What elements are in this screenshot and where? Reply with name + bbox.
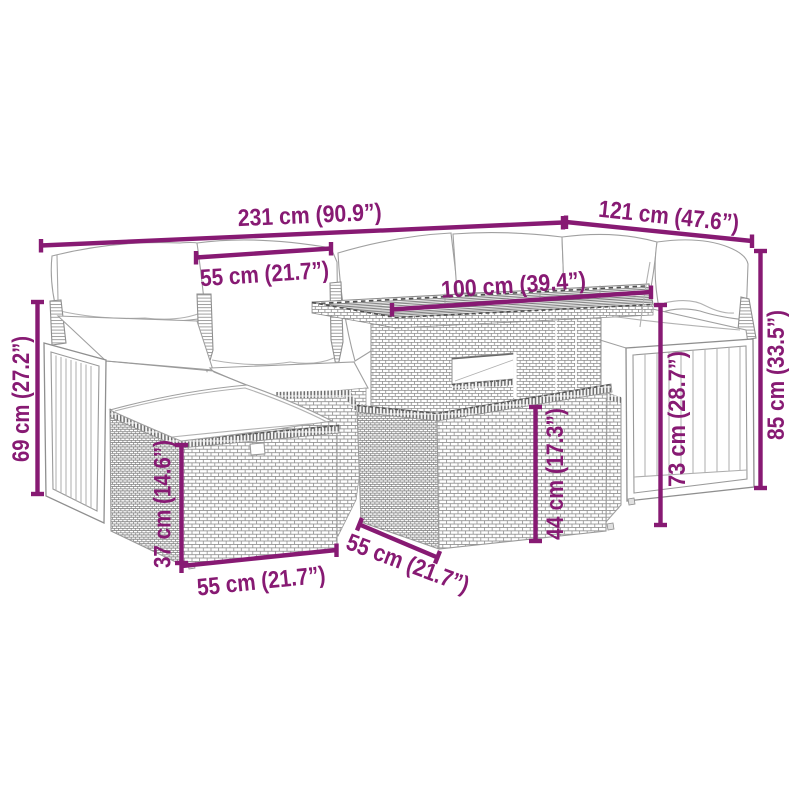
svg-text:73 cm (28.7”): 73 cm (28.7”) [664,351,691,487]
svg-text:69 cm (27.2”): 69 cm (27.2”) [8,336,35,462]
svg-text:37 cm (14.6”): 37 cm (14.6”) [150,440,177,568]
svg-text:85 cm (33.5”): 85 cm (33.5”) [763,310,790,440]
svg-text:44 cm (17.3”): 44 cm (17.3”) [542,408,569,540]
